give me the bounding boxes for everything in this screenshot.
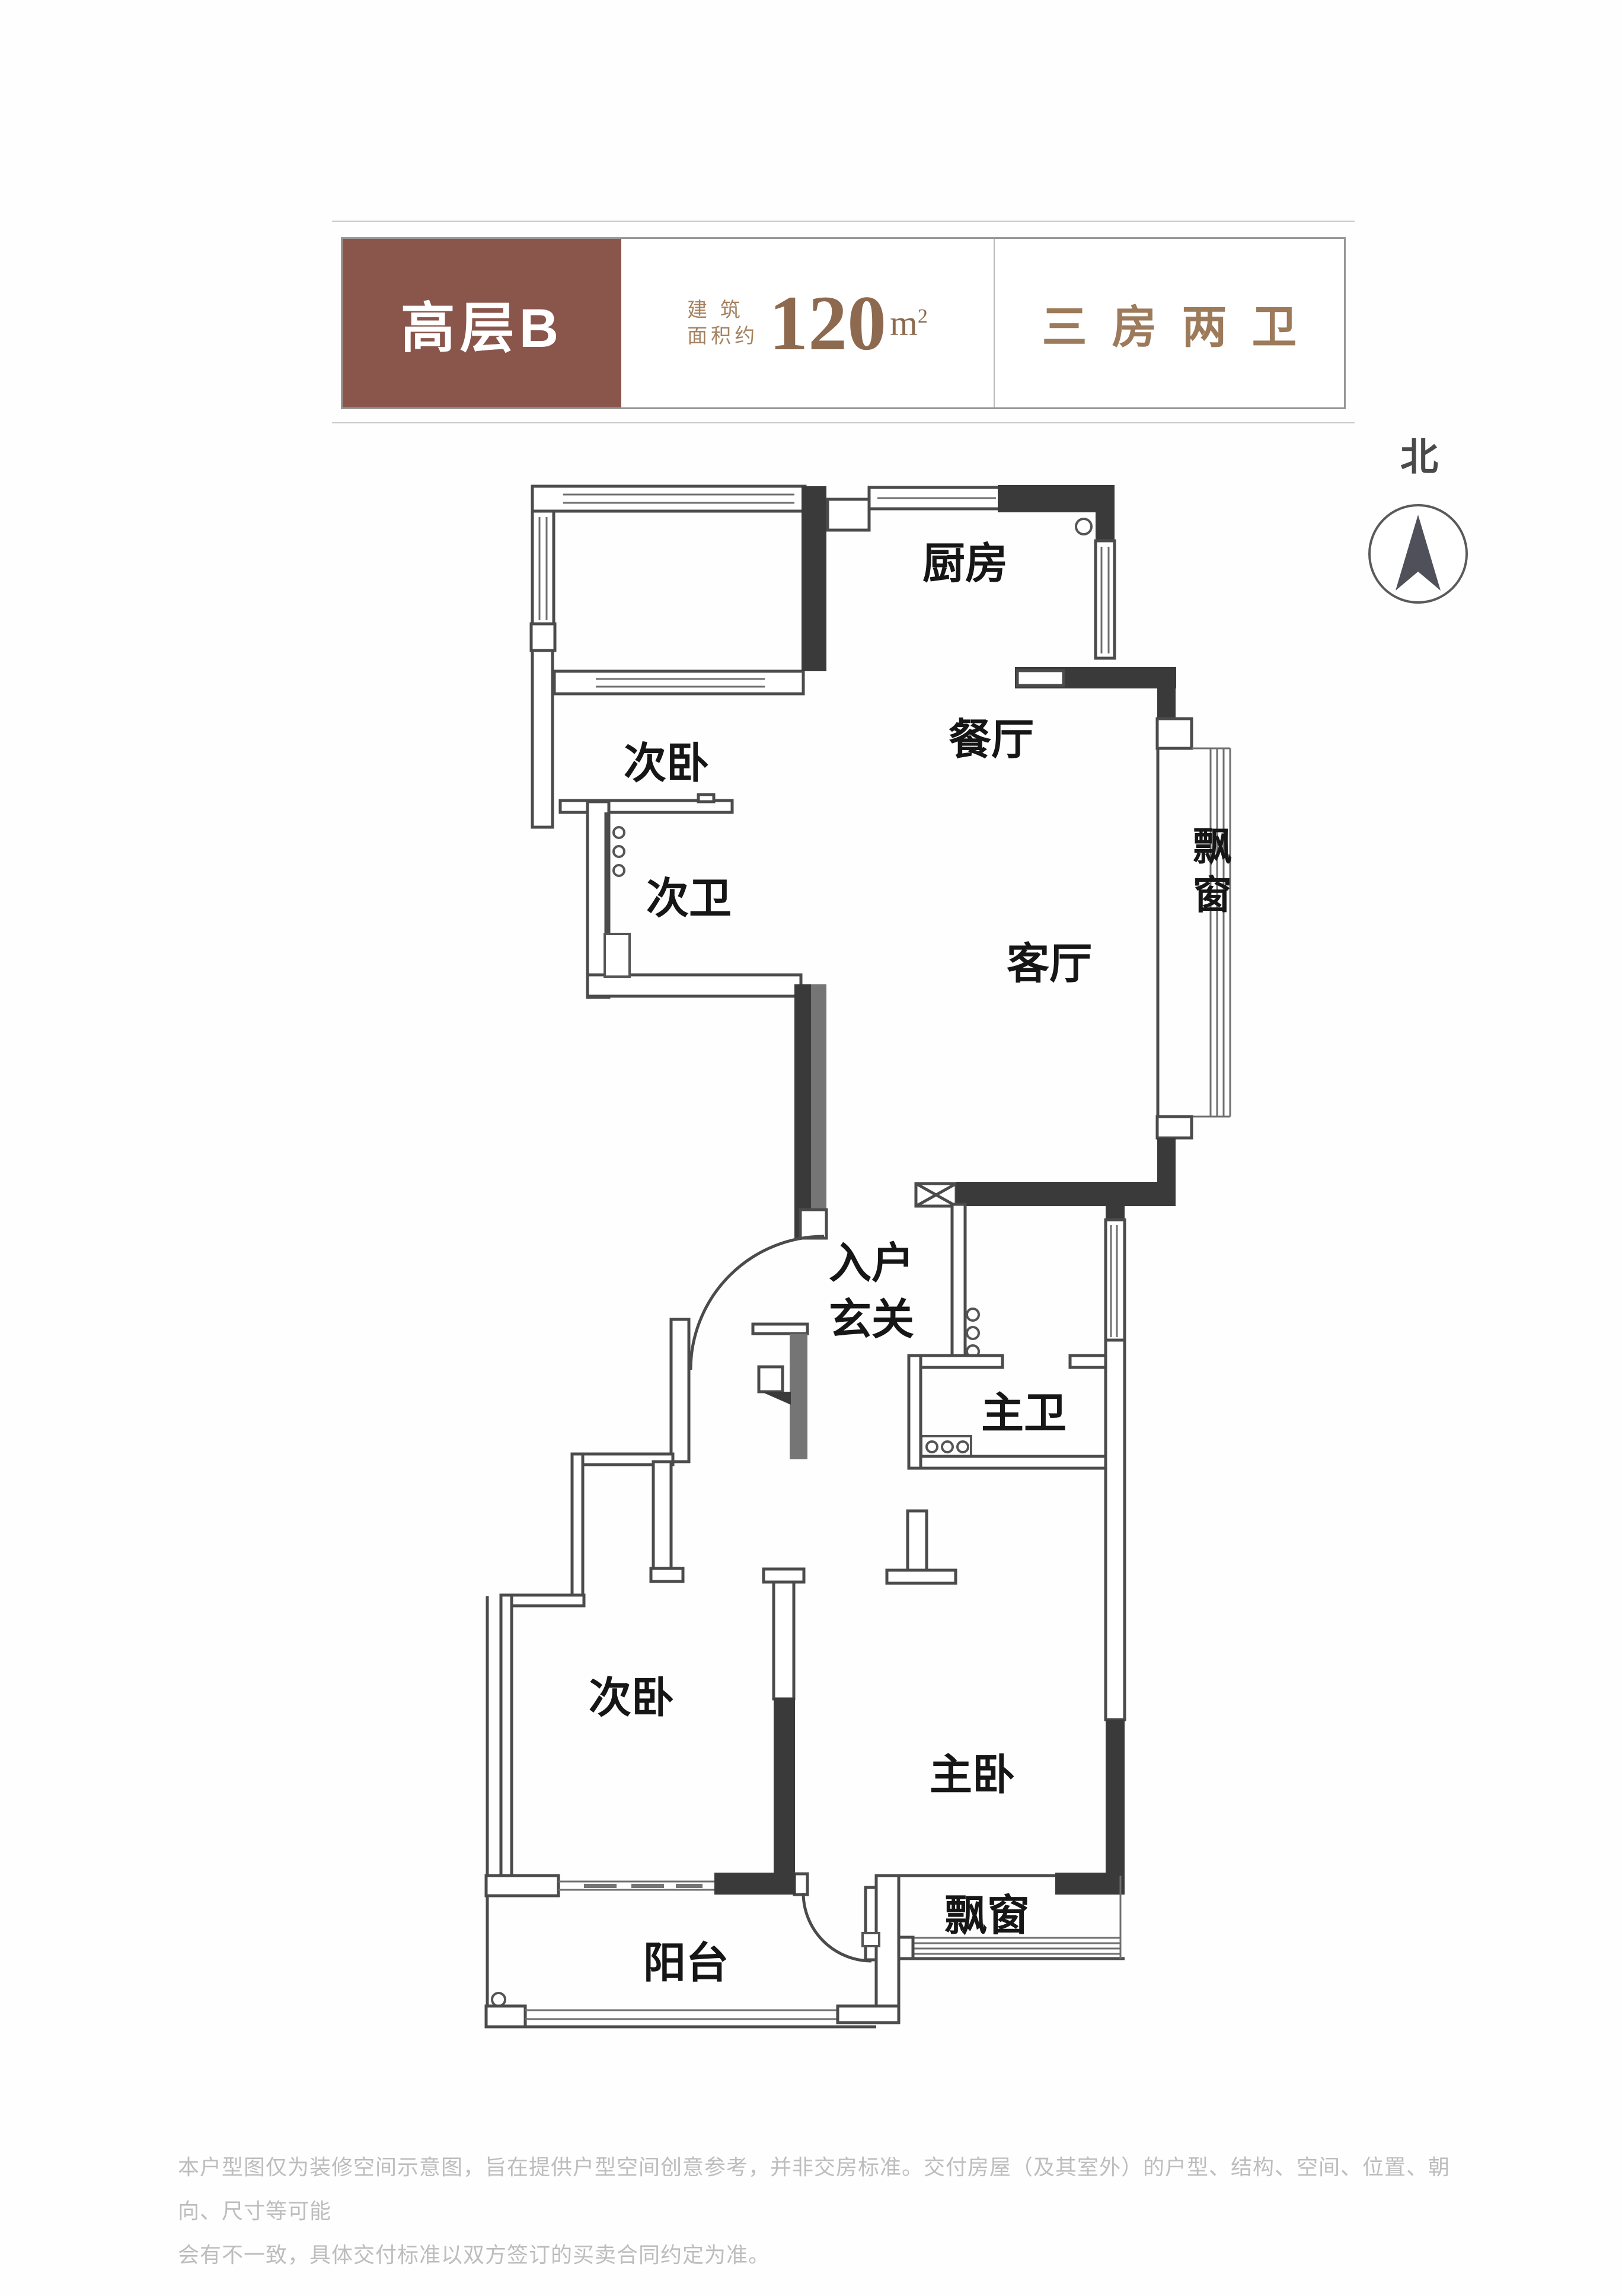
room-label-bedroom-second-south: 次卧 xyxy=(589,1675,674,1722)
room-label-entry-line1: 入户 xyxy=(829,1240,914,1287)
page: 高层B 建 筑 面积约 120 m2 三房两卫 北 xyxy=(0,0,1622,2296)
room-label-bedroom-second-north: 次卧 xyxy=(624,740,709,787)
room-label-kitchen: 厨房 xyxy=(922,540,1008,588)
room-label-bay-window-east: 飘窗 xyxy=(1187,825,1232,923)
footer-disclaimer: 本户型图仅为装修空间示意图，旨在提供户型空间创意参考，并非交房标准。交付房屋（及… xyxy=(178,2145,1482,2277)
floor-plan: 厨房 餐厅 次卧 次卫 客厅 飘窗 入户 玄关 主卫 次卧 主卧 飘窗 阳台 xyxy=(0,0,1622,2296)
room-label-balcony: 阳台 xyxy=(643,1940,729,1987)
room-label-bay-window-south: 飘窗 xyxy=(944,1892,1030,1940)
footer-line-2: 会有不一致，具体交付标准以双方签订的买卖合同约定为准。 xyxy=(178,2233,1482,2277)
footer-line-1: 本户型图仅为装修空间示意图，旨在提供户型空间创意参考，并非交房标准。交付房屋（及… xyxy=(178,2145,1482,2233)
room-label-living: 客厅 xyxy=(1007,940,1092,988)
room-label-bedroom-master: 主卧 xyxy=(930,1752,1015,1799)
room-label-bath-master: 主卫 xyxy=(981,1390,1067,1437)
room-label-entry-line2: 玄关 xyxy=(829,1296,914,1344)
room-label-dining: 餐厅 xyxy=(949,716,1034,764)
room-label-bath-second: 次卫 xyxy=(646,875,732,923)
